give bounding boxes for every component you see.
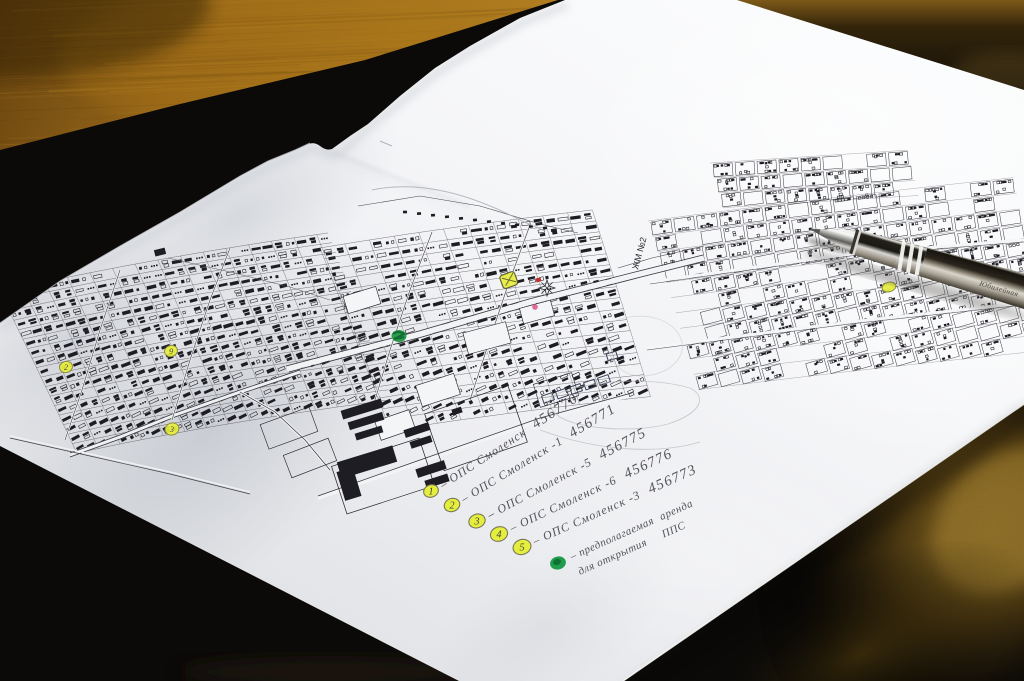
svg-text:5: 5 <box>520 543 525 554</box>
svg-text:3: 3 <box>169 425 174 434</box>
svg-text:4: 4 <box>497 530 502 541</box>
svg-text:2: 2 <box>450 501 455 512</box>
svg-text:1: 1 <box>429 487 434 498</box>
svg-text:9: 9 <box>169 347 173 356</box>
svg-text:3: 3 <box>474 517 480 528</box>
svg-text:2: 2 <box>64 363 68 372</box>
